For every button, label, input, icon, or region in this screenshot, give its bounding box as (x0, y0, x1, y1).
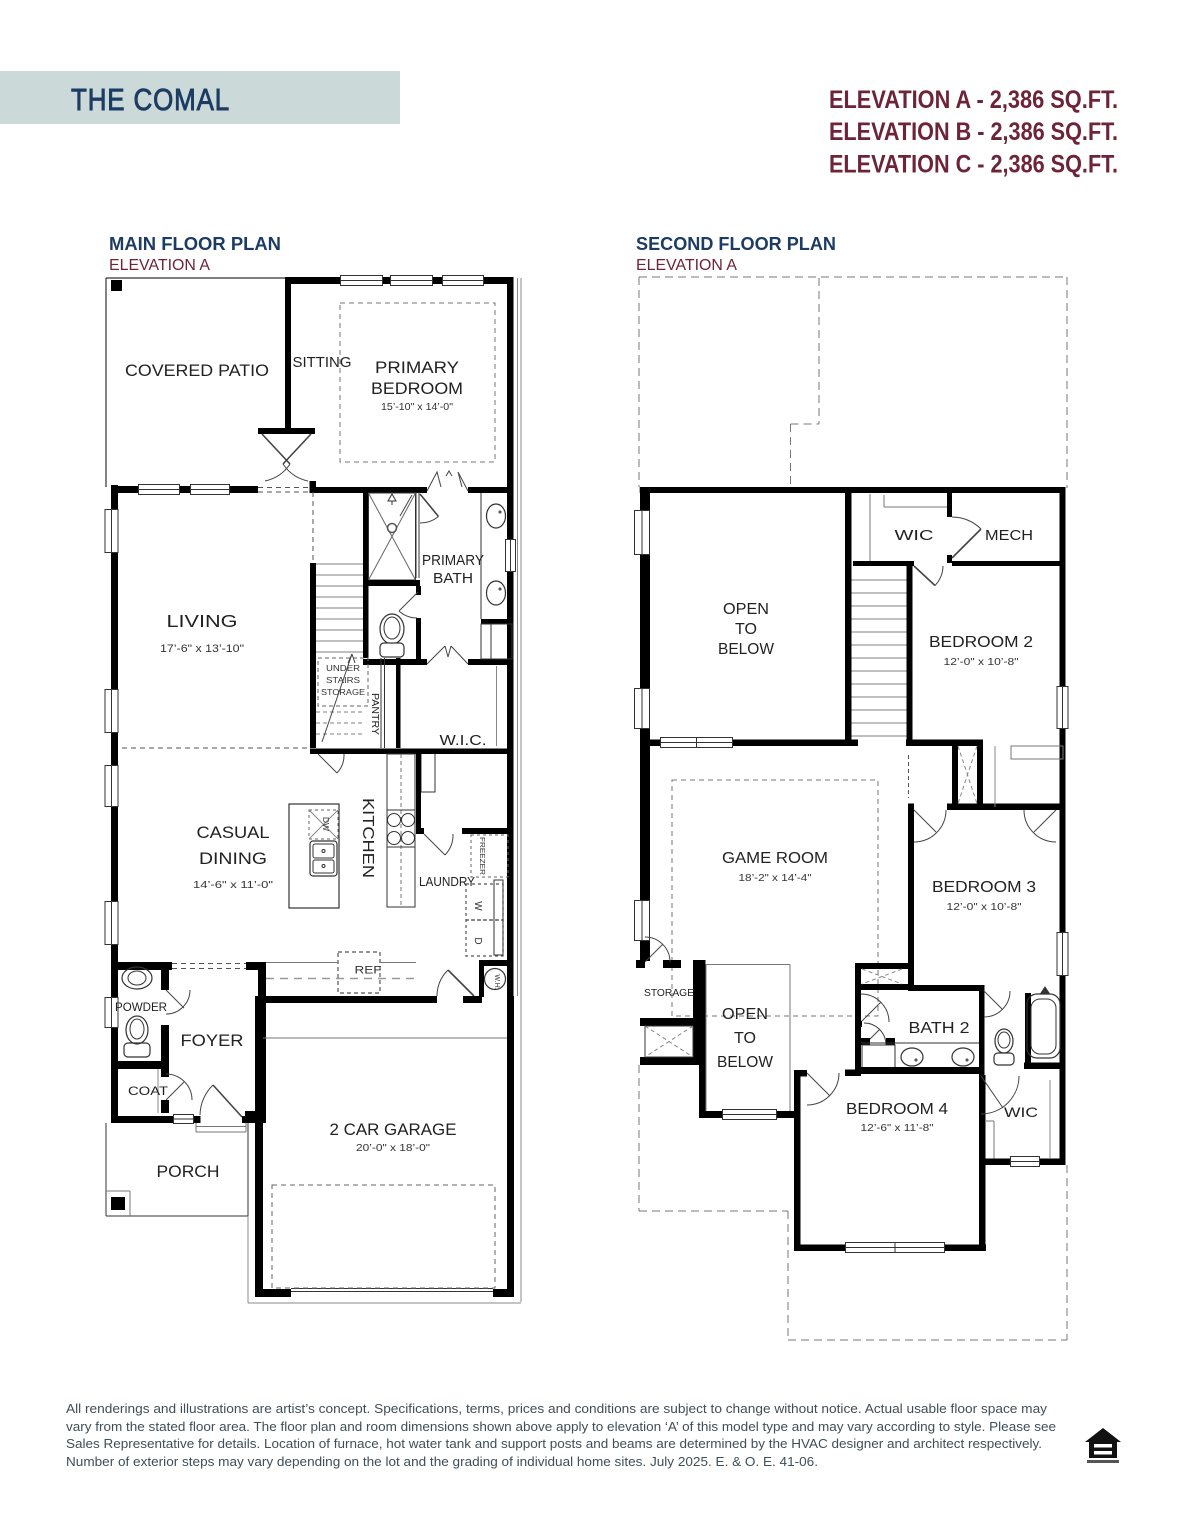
svg-text:ELEVATION B - 2,386 SQ.FT.: ELEVATION B - 2,386 SQ.FT. (829, 118, 1118, 146)
svg-text:MAIN FLOOR PLAN: MAIN FLOOR PLAN (109, 234, 281, 254)
svg-text:18’-2" x 14’-4": 18’-2" x 14’-4" (739, 872, 812, 884)
svg-text:REF: REF (355, 965, 382, 977)
svg-text:STORAGE: STORAGE (321, 687, 365, 697)
svg-text:W.I.C.: W.I.C. (440, 732, 487, 749)
svg-text:D: D (472, 937, 483, 944)
svg-text:KITCHEN: KITCHEN (359, 798, 376, 878)
svg-text:BEDROOM 4: BEDROOM 4 (846, 1101, 948, 1118)
svg-text:BEDROOM: BEDROOM (371, 379, 463, 398)
svg-text:ELEVATION A - 2,386 SQ.FT.: ELEVATION A - 2,386 SQ.FT. (829, 86, 1118, 114)
svg-text:OPEN: OPEN (723, 601, 769, 618)
svg-text:WIC: WIC (895, 527, 934, 544)
svg-text:FREEZER: FREEZER (478, 837, 487, 876)
svg-text:DW: DW (321, 817, 331, 831)
svg-text:STORAGE: STORAGE (644, 988, 694, 999)
svg-text:COAT: COAT (128, 1086, 168, 1098)
svg-text:SECOND FLOOR PLAN: SECOND FLOOR PLAN (636, 234, 836, 254)
svg-text:15’-10" x 14’-0": 15’-10" x 14’-0" (381, 401, 453, 413)
svg-text:PORCH: PORCH (157, 1162, 220, 1181)
svg-text:vary from the stated floor are: vary from the stated floor area. The flo… (66, 1419, 1056, 1434)
svg-text:12’-6" x 11’-8": 12’-6" x 11’-8" (861, 1122, 934, 1134)
svg-text:Sales Representative for detai: Sales Representative for details. Locati… (66, 1436, 1042, 1451)
svg-text:14’-6" x 11’-0": 14’-6" x 11’-0" (193, 879, 273, 891)
svg-text:PRIMARY: PRIMARY (422, 552, 484, 569)
svg-text:2 CAR GARAGE: 2 CAR GARAGE (330, 1120, 457, 1139)
svg-text:FOYER: FOYER (181, 1031, 244, 1050)
svg-text:ELEVATION A: ELEVATION A (636, 257, 738, 274)
svg-text:BATH: BATH (433, 570, 473, 587)
svg-text:WIC: WIC (1004, 1104, 1038, 1120)
svg-text:LIVING: LIVING (167, 611, 238, 631)
svg-text:12’-0" x 10’-8": 12’-0" x 10’-8" (947, 901, 1022, 913)
svg-text:LAUNDRY: LAUNDRY (419, 875, 476, 889)
svg-text:THE COMAL: THE COMAL (71, 82, 230, 117)
svg-text:PANTRY: PANTRY (369, 693, 380, 735)
svg-text:MECH: MECH (985, 527, 1033, 544)
svg-text:W: W (472, 901, 483, 911)
svg-text:TO: TO (735, 621, 757, 638)
svg-text:DINING: DINING (199, 849, 267, 868)
svg-text:PRIMARY: PRIMARY (375, 358, 459, 377)
svg-text:BELOW: BELOW (717, 1054, 773, 1071)
svg-text:POWDER: POWDER (115, 1002, 167, 1014)
svg-text:BEDROOM 3: BEDROOM 3 (932, 879, 1036, 896)
svg-text:SITTING: SITTING (293, 354, 352, 371)
svg-text:TO: TO (734, 1030, 756, 1047)
svg-text:COVERED PATIO: COVERED PATIO (125, 361, 269, 380)
svg-text:BATH 2: BATH 2 (909, 1020, 970, 1037)
svg-text:BEDROOM 2: BEDROOM 2 (929, 634, 1033, 651)
svg-text:BELOW: BELOW (718, 641, 774, 658)
svg-text:Number of exterior steps may v: Number of exterior steps may vary depend… (66, 1454, 818, 1469)
svg-text:20’-0" x 18’-0": 20’-0" x 18’-0" (356, 1142, 430, 1154)
svg-text:ELEVATION C - 2,386 SQ.FT.: ELEVATION C - 2,386 SQ.FT. (829, 151, 1118, 179)
svg-text:ELEVATION A: ELEVATION A (109, 257, 211, 274)
svg-text:OPEN: OPEN (722, 1006, 768, 1023)
svg-text:CASUAL: CASUAL (197, 823, 270, 842)
svg-text:All renderings and illustratio: All renderings and illustrations are art… (66, 1401, 1047, 1416)
svg-text:UNDER: UNDER (326, 663, 360, 673)
svg-text:12’-0" x 10’-8": 12’-0" x 10’-8" (944, 656, 1019, 668)
svg-text:GAME ROOM: GAME ROOM (722, 850, 828, 867)
svg-text:17’-6" x 13’-10": 17’-6" x 13’-10" (160, 643, 244, 655)
svg-text:W.H.: W.H. (493, 974, 500, 989)
